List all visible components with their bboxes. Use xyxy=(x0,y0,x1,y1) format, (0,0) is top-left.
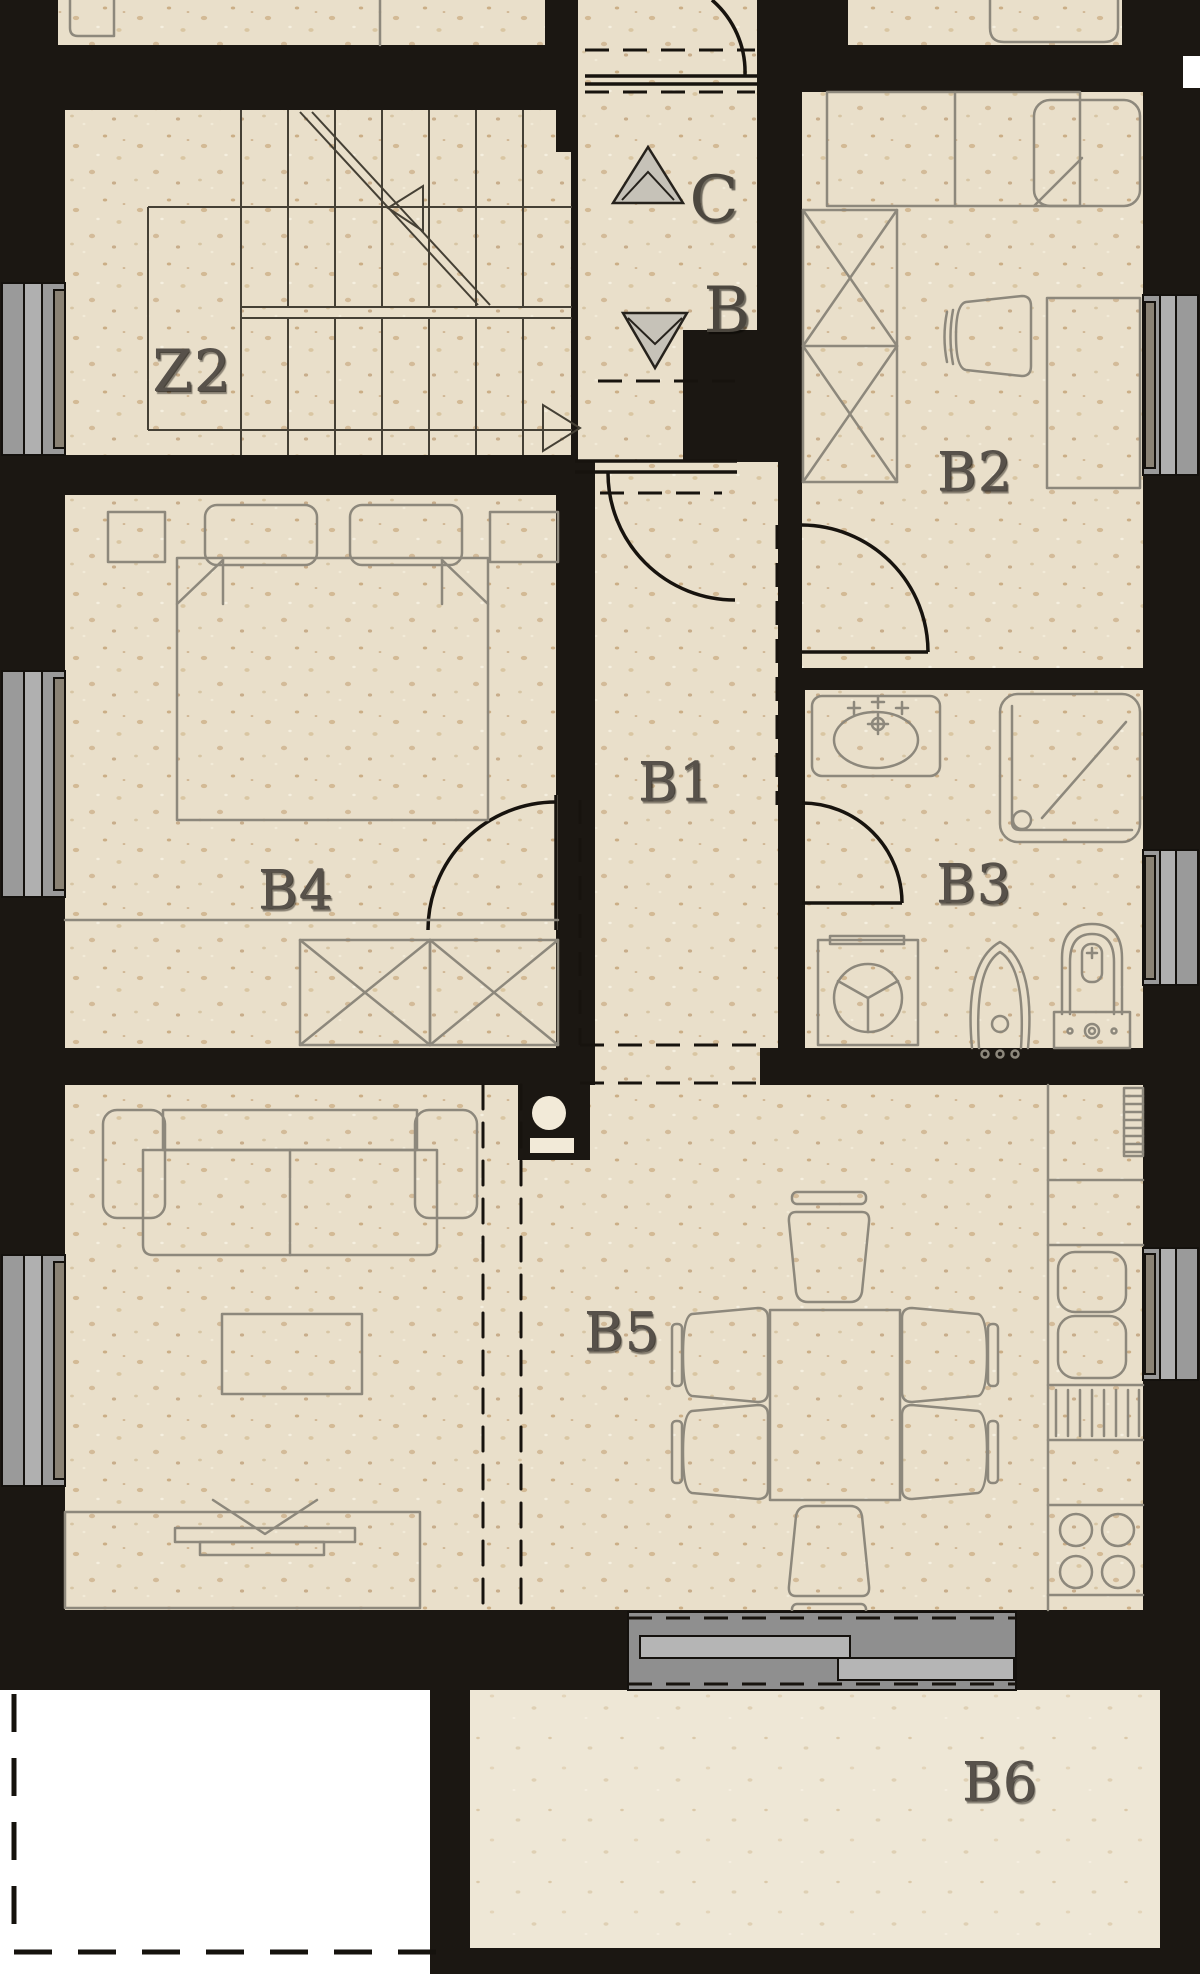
room-b2-window xyxy=(1143,295,1198,475)
room-b4-floor xyxy=(65,495,558,1048)
terrace-sliding-door xyxy=(628,1612,1016,1690)
b4-b5-wall xyxy=(65,1048,580,1085)
flue-slot xyxy=(530,1138,574,1153)
room-b5-window xyxy=(2,1255,65,1486)
stairs-up-marker-label: C xyxy=(690,163,739,237)
upper-room-right-floor xyxy=(848,0,1122,45)
kitchen-window xyxy=(1143,1248,1198,1380)
terrace-b6-floor xyxy=(470,1690,1160,1948)
flue-circle xyxy=(532,1096,566,1130)
b1-b2-partition-a xyxy=(778,462,802,525)
stairwell-window xyxy=(2,283,65,455)
bathroom-b3-floor xyxy=(805,690,1143,1048)
b3-b5-wall xyxy=(760,1048,1143,1085)
hall-b1-floor xyxy=(595,462,778,1085)
b4-b1-partition-a xyxy=(556,462,595,795)
b1-partition-mid xyxy=(778,652,802,805)
room-b2-floor xyxy=(802,92,1143,668)
landing-b2-wall xyxy=(757,0,802,462)
upper-room-left-floor xyxy=(58,0,545,45)
facade-notch xyxy=(1183,56,1200,88)
floor-plan-drawing xyxy=(0,0,1200,1974)
sliding-panel xyxy=(838,1658,1014,1680)
floor-plan: Z2 C B B2 B1 B4 B3 B5 B6 xyxy=(0,0,1200,1974)
stair-landing-line xyxy=(571,110,576,462)
stairs-down-marker-label: B xyxy=(703,274,750,348)
bathroom-b3-window xyxy=(1143,850,1198,985)
sliding-panel xyxy=(640,1636,850,1658)
room-b4-window xyxy=(2,671,65,897)
stairwell-floor xyxy=(65,110,572,455)
b2-b3-wall xyxy=(802,668,1143,690)
entry-corner-block xyxy=(683,330,757,462)
site-boundary xyxy=(14,1694,452,1952)
room-b5-floor xyxy=(65,1085,1143,1610)
b4-b1-partition-b xyxy=(556,930,580,1048)
